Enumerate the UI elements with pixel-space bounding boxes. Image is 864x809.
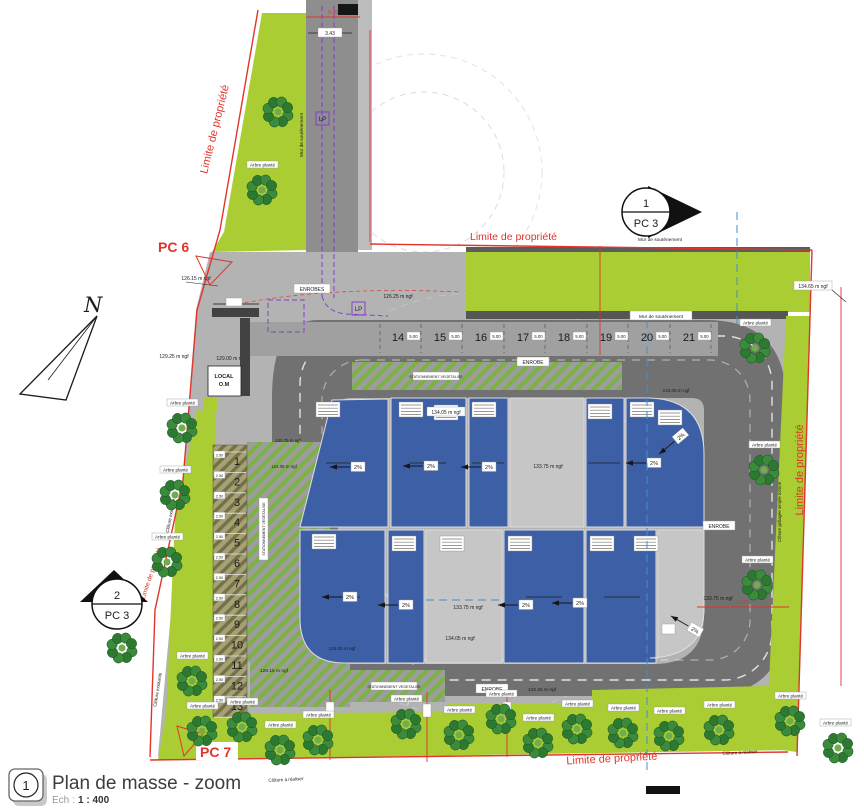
tree-icon: Arbre planté <box>227 698 258 742</box>
parking-strip-left: 12.5022.5032.5042.5052.5062.5072.5082.50… <box>213 445 247 717</box>
scale-value: 1 : 400 <box>78 795 110 806</box>
roof-note-box <box>630 402 654 417</box>
parking-dim: 2.50 <box>216 698 223 702</box>
parking-dim: 2.50 <box>216 637 223 641</box>
tree-icon: Arbre planté <box>265 721 296 765</box>
lp-label: LP <box>355 307 362 313</box>
parking-space-number: 10 <box>231 640 243 652</box>
north-compass: N <box>20 293 103 400</box>
dim-label: 3.43 <box>325 31 335 37</box>
elevation-label: 126.25 m ngf <box>528 687 557 693</box>
dim-label: 5.45 <box>328 10 338 16</box>
parking-space-number: 8 <box>234 599 240 611</box>
parking-space-number: 3 <box>234 497 240 509</box>
parking-space-number: 5 <box>234 538 240 550</box>
parking-space-number: 19 <box>600 332 612 344</box>
band-label: STATIONNEMENT VEGETALISE <box>409 375 463 379</box>
parking-space-number: 16 <box>475 332 487 344</box>
pc3-number: 2 <box>114 590 120 602</box>
surface-label: ENROBE <box>708 524 730 530</box>
surface-label: ENROBE <box>522 360 544 366</box>
roof-note-box <box>588 404 612 419</box>
tree-label: Arbre planté <box>163 468 188 473</box>
site-plan-sheet: 145.00155.00165.00175.00185.00195.00205.… <box>0 0 864 809</box>
surface-label: ENROBES <box>300 287 325 293</box>
tree-icon: Arbre planté <box>742 556 773 600</box>
pc3-marker-left: 2 PC 3 <box>80 570 148 629</box>
sheet-number: 1 <box>22 778 29 793</box>
tree-label: Arbre planté <box>155 535 180 540</box>
roof-note-box <box>392 536 416 551</box>
parking-space-number: 21 <box>683 332 695 344</box>
tree-icon: Arbre planté <box>187 702 218 746</box>
lp-label: LP <box>319 117 326 123</box>
parking-space-number: 1 <box>234 456 240 468</box>
parking-dim: 2.50 <box>216 658 223 662</box>
upper-lawn-strip <box>466 247 810 319</box>
parking-space-number: 15 <box>434 332 446 344</box>
title-block: 1 Plan de masse - zoom Ech : 1 : 400 <box>9 769 241 806</box>
elevation-label: 134.05 m ngf <box>431 410 461 416</box>
tree-label: Arbre planté <box>707 703 732 708</box>
boundary-label: Limite de propriété <box>794 424 806 515</box>
slope-label: 2% <box>354 465 362 471</box>
parking-space-number: 4 <box>234 517 240 529</box>
parking-space-number: 9 <box>234 619 240 631</box>
elevation-label: 133.75 m ngf <box>533 464 563 470</box>
elevation-label: 123.75 m ngf <box>275 438 301 443</box>
elevation-label: 126.25 m ngf <box>383 294 413 300</box>
tree-label: Arbre planté <box>190 704 215 709</box>
parking-dim: 2.50 <box>216 494 223 498</box>
tree-label: Arbre planté <box>180 654 205 659</box>
tree-label: Arbre planté <box>745 558 770 563</box>
elevation-label: 126.15 m ngf <box>260 668 289 674</box>
tree-icon: Arbre planté <box>444 706 475 750</box>
parking-space-number: 12 <box>231 680 243 692</box>
tree-label: Arbre planté <box>823 721 848 726</box>
tree-label: Arbre planté <box>268 723 293 728</box>
pc3-label: PC 3 <box>634 218 658 230</box>
parking-dim: 5.00 <box>658 334 667 339</box>
pc3-number: 1 <box>643 198 649 210</box>
tree-icon: Arbre planté <box>167 399 198 443</box>
parking-dim: 5.00 <box>617 334 626 339</box>
parking-dim: 2.50 <box>216 678 223 682</box>
roof-note-box <box>634 536 658 551</box>
tree-icon: Arbre planté <box>391 695 422 739</box>
slope-label: 2% <box>650 461 658 467</box>
parking-dim: 5.00 <box>700 334 709 339</box>
parking-space-number: 6 <box>234 558 240 570</box>
band-label-vertical: STATIONNEMENT VEGETALISE <box>262 502 266 556</box>
roof-note-box <box>440 536 464 551</box>
tree-label: Arbre planté <box>526 716 551 721</box>
parking-dim: 2.50 <box>216 535 223 539</box>
tree-label: Arbre planté <box>778 694 803 699</box>
elevation-label: 134.65 m ngf <box>798 284 828 290</box>
scale-bar <box>646 786 680 794</box>
parking-space-number: 11 <box>231 660 242 672</box>
scale-prefix: Ech : <box>52 795 75 806</box>
tree-label: Arbre planté <box>489 692 514 697</box>
tree-icon: Arbre planté <box>820 719 853 763</box>
tree-label: Arbre planté <box>250 163 275 168</box>
pc7-label: PC 7 <box>200 744 231 760</box>
boundary-label: Limite de propriété <box>470 231 557 243</box>
elevation-label: 134.05 m ngf <box>329 646 357 651</box>
parking-space-number: 2 <box>234 476 240 488</box>
tree-label: Arbre planté <box>447 708 472 713</box>
roof-note-box <box>312 534 336 549</box>
parking-dim: 2.50 <box>216 556 223 560</box>
elevation-label: 134.05 m ngf <box>663 388 691 393</box>
fence-label: Clôture existante <box>152 672 162 707</box>
tree-label: Arbre planté <box>657 709 682 714</box>
parking-dim: 2.50 <box>216 515 223 519</box>
tree-icon: Arbre planté <box>740 319 771 363</box>
slope-label: 2% <box>485 465 493 471</box>
tree-label: Arbre planté <box>743 321 768 326</box>
elevation-label: 133.75 m ngf <box>703 596 733 602</box>
tree-label: Arbre planté <box>170 401 195 406</box>
site-plan-drawing: 145.00155.00165.00175.00185.00195.00205.… <box>0 0 864 809</box>
slope-label: 2% <box>522 603 530 609</box>
elevation-label: 134.05 m ngf <box>445 636 475 642</box>
lawn-top-left <box>212 13 306 252</box>
tree-label: Arbre planté <box>394 697 419 702</box>
tree-icon: Arbre planté <box>775 692 806 736</box>
wall-label: Mur de soutènement <box>638 237 683 243</box>
band-label: STATIONNEMENT VEGETALISE <box>367 685 421 689</box>
boundary-label: Limite de propriété <box>198 84 232 175</box>
tree-icon: Arbre planté <box>608 704 639 748</box>
roof-note-box <box>508 536 532 551</box>
fence-label: Clôture à réaliser <box>268 776 304 783</box>
tree-label: Arbre planté <box>230 700 255 705</box>
tree-label: Arbre planté <box>752 443 777 448</box>
elevation-label: 124.05 m ngf <box>271 464 297 469</box>
tree-icon: Arbre planté <box>152 533 183 577</box>
elevation-label: 133.75 m ngf <box>453 605 483 611</box>
slope-label: 2% <box>427 464 435 470</box>
local-om-label: LOCAL <box>215 374 235 380</box>
tree-icon: Arbre planté <box>247 161 278 205</box>
dim-label: 11.75 <box>736 600 748 606</box>
buildings <box>300 398 704 663</box>
tree-label: Arbre planté <box>611 706 636 711</box>
parking-dim: 2.50 <box>216 596 223 600</box>
road-structure <box>338 4 358 15</box>
fence-label: Clôture à réaliser <box>722 749 758 756</box>
parking-space-number: 7 <box>234 578 240 590</box>
slope-label: 2% <box>402 603 410 609</box>
parking-dim: 5.00 <box>492 334 501 339</box>
parking-space-number: 18 <box>558 332 570 344</box>
tree-label: Arbre planté <box>565 702 590 707</box>
tree-icon: Arbre planté <box>654 707 685 751</box>
tree-icon: Arbre planté <box>177 652 208 696</box>
parking-dim: 2.50 <box>216 454 223 458</box>
lawn-patch <box>204 398 217 411</box>
tree-icon: Arbre planté <box>303 711 334 755</box>
tree-icon: Arbre planté <box>704 701 735 745</box>
parking-row-top: 145.00155.00165.00175.00185.00195.00205.… <box>240 322 718 356</box>
local-om-label: O.M <box>219 382 230 388</box>
roof-note-box <box>399 402 423 417</box>
pc6-label: PC 6 <box>158 239 189 255</box>
parking-dim: 5.00 <box>451 334 460 339</box>
sheet-title: Plan de masse - zoom <box>52 773 241 794</box>
pc3-label: PC 3 <box>105 610 129 622</box>
slope-label: 2% <box>576 601 584 607</box>
building-roof <box>300 530 385 663</box>
parking-dim: 2.50 <box>216 617 223 621</box>
roof-note-box <box>662 624 675 634</box>
wall-label: Mur de soutènement <box>639 314 684 320</box>
tree-icon: Arbre planté <box>486 690 517 734</box>
parking-space-number: 17 <box>517 332 529 344</box>
roof-note-box <box>590 536 614 551</box>
tree-icon: Arbre planté <box>160 466 191 510</box>
courtyard <box>510 398 584 527</box>
elevation-label: 129.25 m ngf <box>159 354 189 360</box>
slope-label: 2% <box>346 595 354 601</box>
tree-icon: Arbre planté <box>562 700 593 744</box>
tree-label: Arbre planté <box>306 713 331 718</box>
parking-space-number: 14 <box>392 332 404 344</box>
tree-icon: Arbre planté <box>523 714 554 758</box>
roof-note-box <box>316 402 340 417</box>
parking-dim: 5.00 <box>534 334 543 339</box>
tree-icon: Arbre planté <box>749 441 780 485</box>
pc3-marker-top: 1 PC 3 <box>622 186 702 238</box>
parking-dim: 5.00 <box>575 334 584 339</box>
north-label: N <box>83 293 103 317</box>
parking-dim: 2.50 <box>216 576 223 580</box>
parking-dim: 2.50 <box>216 474 223 478</box>
roof-note-box <box>472 402 496 417</box>
fence-label: Clôture grillagée simple torsion <box>777 481 782 542</box>
access-road <box>306 0 372 252</box>
tree-icon <box>107 633 137 663</box>
parking-dim: 5.00 <box>409 334 418 339</box>
wall-label: Mur de soutènement <box>299 112 305 157</box>
roof-note-box <box>658 410 682 425</box>
